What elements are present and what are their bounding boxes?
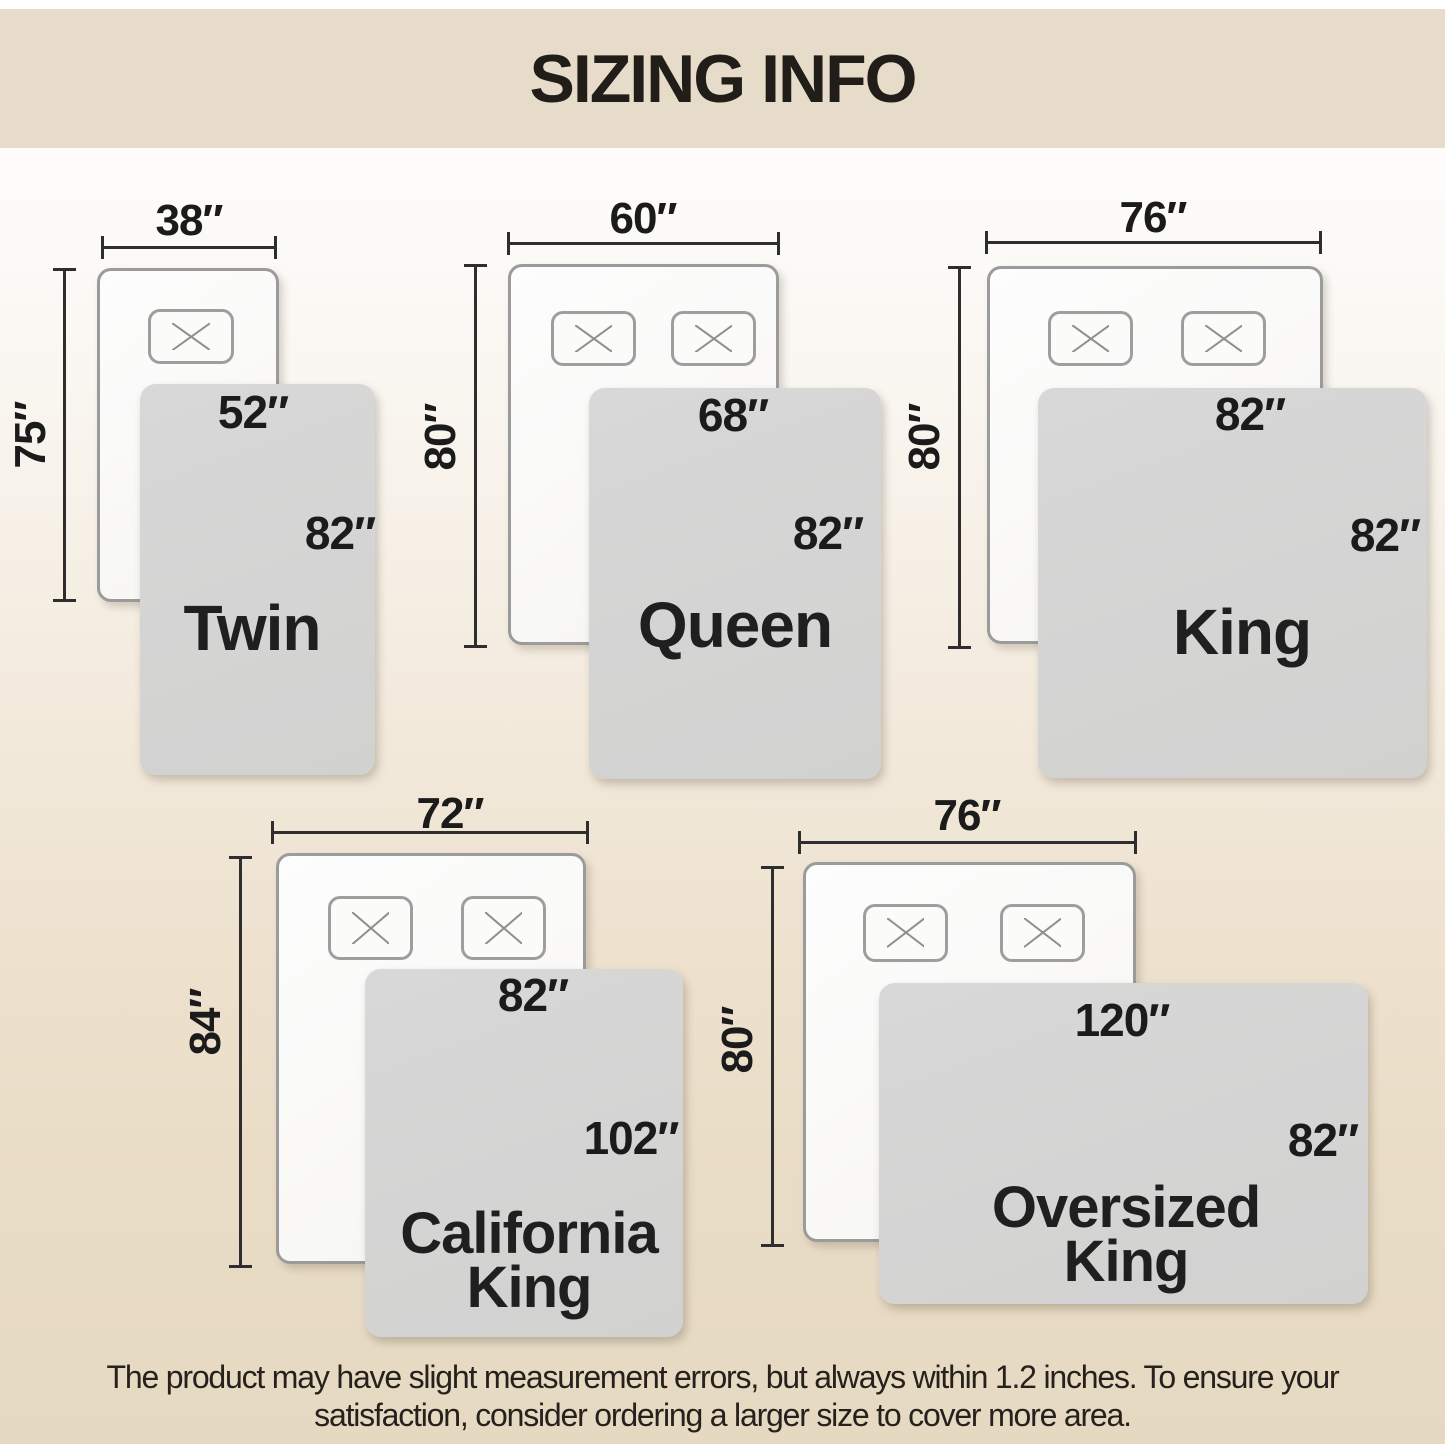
disclaimer-text: The product may have slight measurement … <box>0 1358 1445 1434</box>
oversized-king-length-dimension-line <box>771 866 774 1247</box>
oversized-king-bed-length-label: 80″ <box>713 1006 763 1073</box>
pillow-icon <box>863 904 948 962</box>
pillow-icon <box>1000 904 1085 962</box>
disclaimer-line2: satisfaction, consider ordering a larger… <box>0 1396 1445 1434</box>
disclaimer-line1: The product may have slight measurement … <box>0 1358 1445 1396</box>
pillow-x-icon <box>1024 918 1062 947</box>
oversized-king-bed-width-label: 76″ <box>933 791 1000 841</box>
oversized-king-blanket-width-label: 120″ <box>1075 993 1170 1047</box>
oversized-king-blanket-length-label: 82″ <box>1288 1113 1358 1167</box>
sizing-info-page: SIZING INFO 38″ 75″ 52″ 82″ Twin 60″ 80″ <box>0 0 1445 1444</box>
oversized-king-name-label: Oversized King <box>992 1181 1260 1289</box>
oversized-king-width-dimension-line <box>798 841 1137 844</box>
oversized-king-name-line2: King <box>992 1235 1260 1289</box>
pillow-x-icon <box>887 918 925 947</box>
oversized-king-blanket: 120″ 82″ Oversized King <box>879 983 1368 1304</box>
oversized-king-name-line1: Oversized <box>992 1181 1260 1235</box>
oversized-king-diagram: 76″ 80″ 120″ 82″ Oversized King <box>0 0 1445 1444</box>
